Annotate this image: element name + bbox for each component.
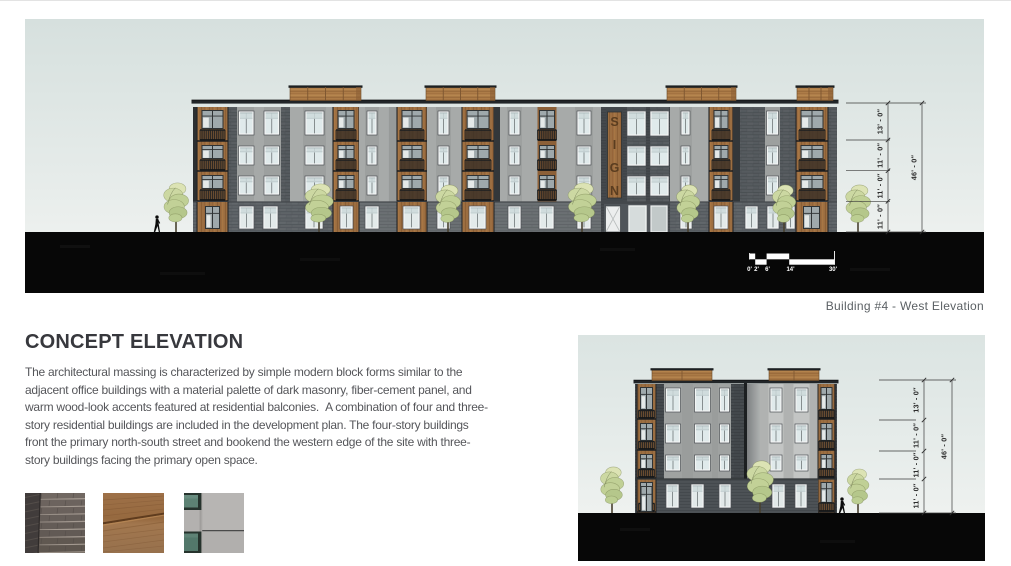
svg-text:11' - 0″: 11' - 0″ — [912, 452, 921, 477]
svg-text:13' - 0″: 13' - 0″ — [876, 108, 885, 134]
svg-text:11' - 0″: 11' - 0″ — [912, 483, 921, 508]
svg-text:14': 14' — [786, 267, 795, 273]
svg-text:S: S — [610, 115, 618, 129]
svg-text:30': 30' — [829, 267, 838, 273]
svg-text:46' - 0″: 46' - 0″ — [910, 154, 919, 180]
svg-text:11' - 0″: 11' - 0″ — [912, 423, 921, 448]
svg-text:2': 2' — [754, 267, 759, 273]
svg-text:N: N — [610, 184, 619, 198]
svg-text:6': 6' — [765, 267, 770, 273]
svg-text:0': 0' — [747, 267, 752, 273]
svg-text:46' - 0″: 46' - 0″ — [940, 433, 949, 459]
svg-text:11' - 0″: 11' - 0″ — [876, 204, 885, 229]
svg-text:11' - 0″: 11' - 0″ — [876, 173, 885, 198]
svg-text:11' - 0″: 11' - 0″ — [876, 142, 885, 167]
svg-text:13' - 0″: 13' - 0″ — [912, 387, 921, 413]
svg-text:G: G — [610, 161, 620, 175]
svg-text:I: I — [613, 138, 616, 152]
